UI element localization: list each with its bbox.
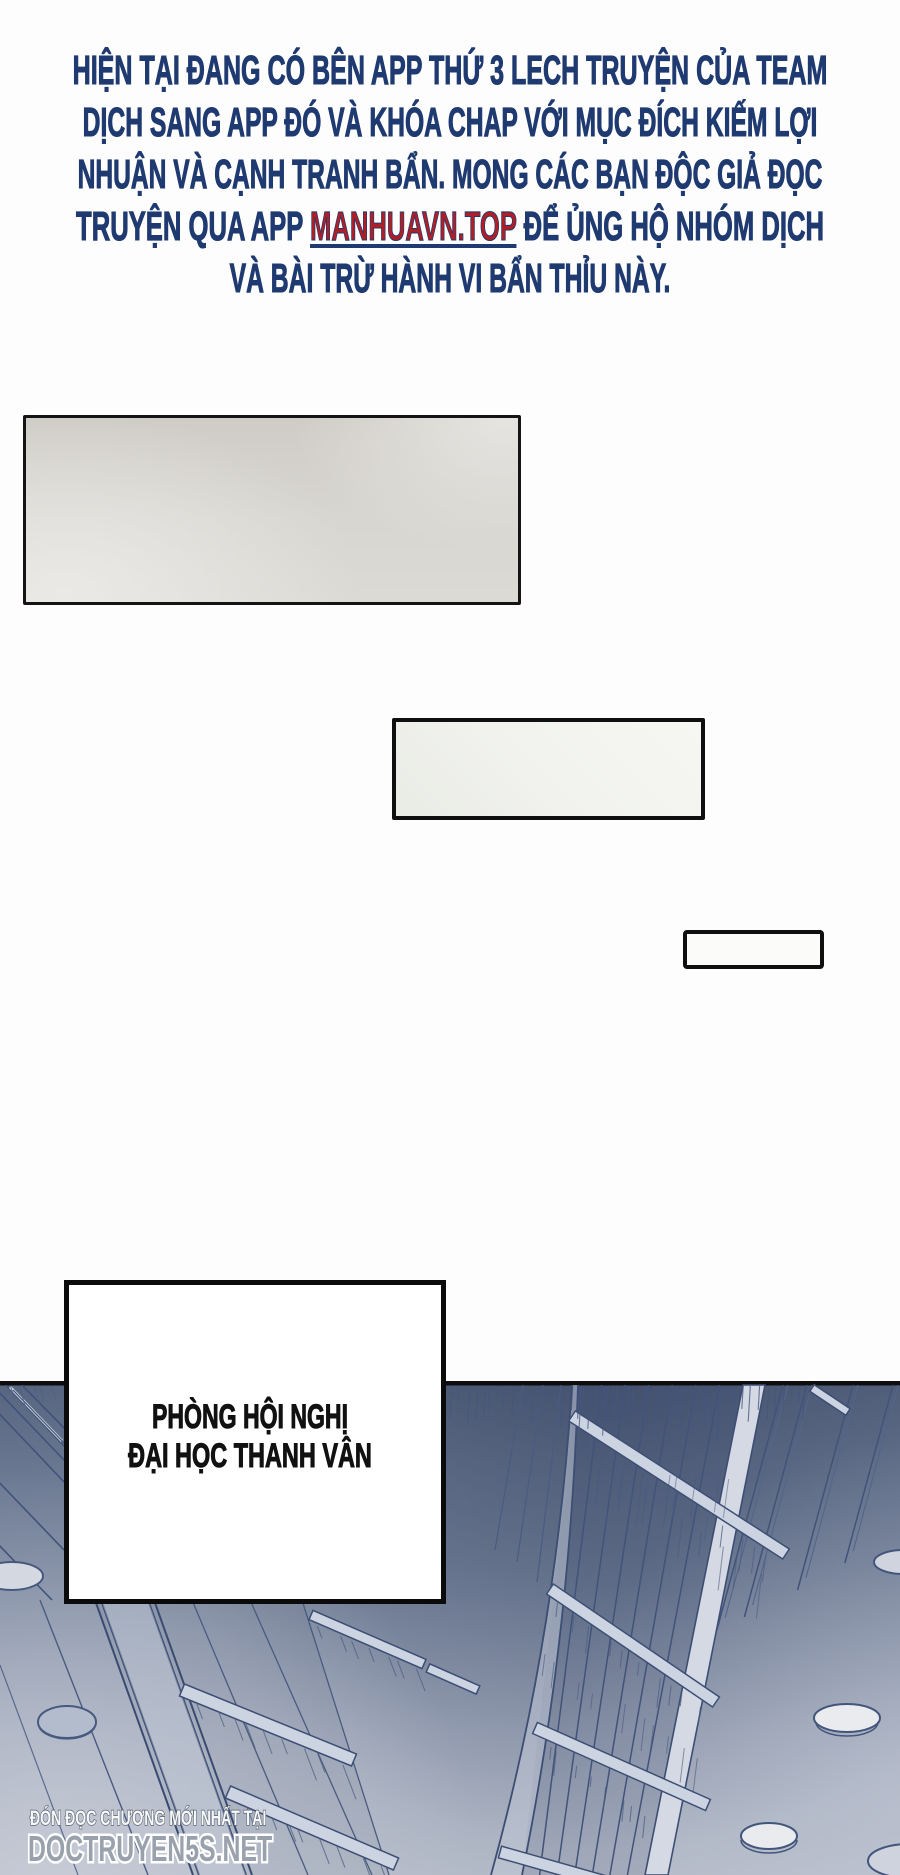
svg-text:ĐÓN ĐỌC CHƯƠNG MỚI NHẤT TẠI: ĐÓN ĐỌC CHƯƠNG MỚI NHẤT TẠI <box>30 1805 266 1830</box>
svg-text:DOCTRUYEN5S.NET: DOCTRUYEN5S.NET <box>28 1828 272 1869</box>
